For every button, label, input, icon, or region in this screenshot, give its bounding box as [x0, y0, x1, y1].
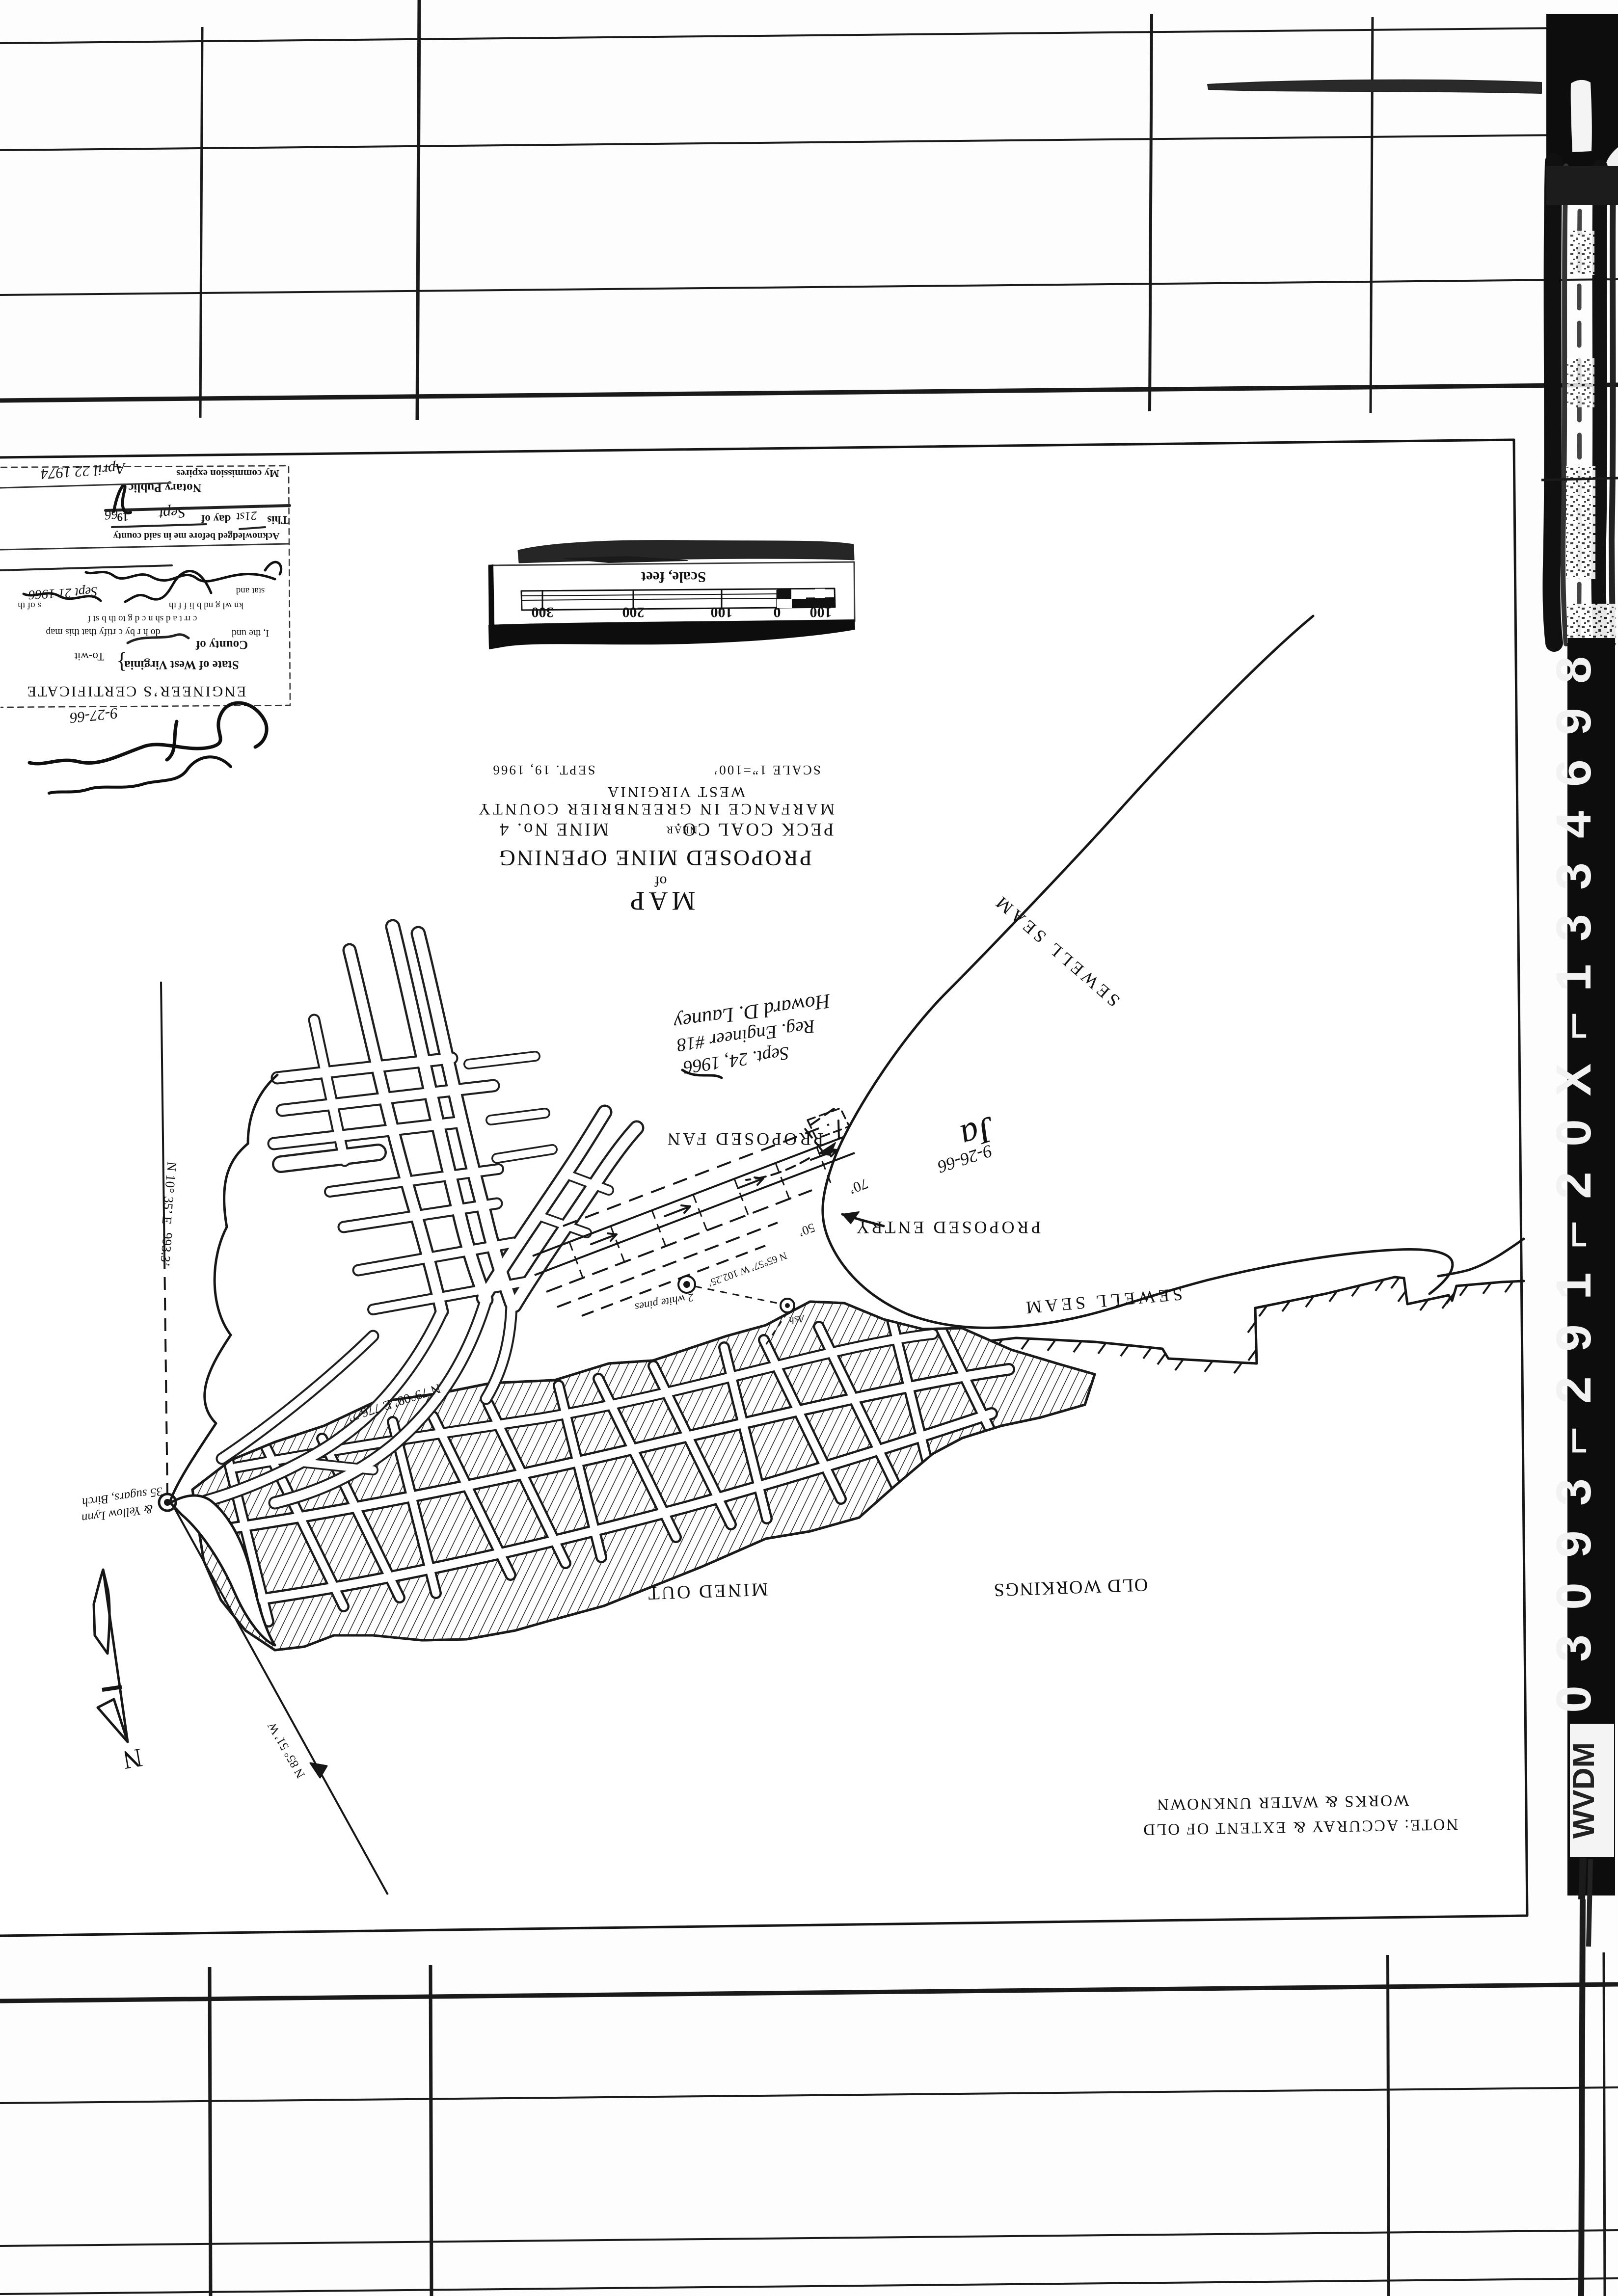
- svg-text:300: 300: [532, 604, 554, 620]
- svg-text:X: X: [1546, 1064, 1601, 1096]
- svg-text:3: 3: [1546, 862, 1601, 890]
- svg-text:3: 3: [1546, 914, 1601, 941]
- svg-text:kn wl g nd b li f f th: kn wl g nd b li f f th: [169, 600, 243, 611]
- svg-text:2: 2: [1546, 1172, 1601, 1199]
- svg-text:MAP: MAP: [626, 886, 695, 916]
- svg-text:9: 9: [1546, 708, 1601, 735]
- svg-text:c rr t a d sh n c d g to th: c rr t a d sh n c d g to th b st f: [87, 614, 197, 624]
- svg-text:4: 4: [1546, 811, 1601, 838]
- svg-text:993.3’: 993.3’: [158, 1232, 175, 1267]
- svg-text:To-wit: To-wit: [74, 650, 105, 663]
- svg-text:PROPOSED MINE OPENING: PROPOSED MINE OPENING: [498, 846, 812, 871]
- svg-text:NEAR: NEAR: [665, 824, 697, 836]
- svg-text:1: 1: [1546, 964, 1601, 991]
- svg-text:3: 3: [1546, 1634, 1601, 1662]
- svg-text:This: This: [267, 514, 289, 526]
- svg-text:⌐: ⌐: [1546, 1012, 1601, 1040]
- svg-text:200: 200: [622, 604, 645, 620]
- svg-text:I, the und: I, the und: [232, 628, 269, 639]
- svg-text:}: }: [116, 650, 127, 675]
- svg-text:of: of: [655, 873, 667, 889]
- svg-text:PROPOSED FAN: PROPOSED FAN: [665, 1129, 823, 1149]
- svg-text:Acknowledged before me in said: Acknowledged before me in said county: [113, 531, 279, 541]
- svg-text:21st: 21st: [236, 508, 258, 524]
- svg-text:ENGINEER’S CERTIFICATE: ENGINEER’S CERTIFICATE: [26, 683, 246, 700]
- svg-text:⌐: ⌐: [1546, 1220, 1601, 1249]
- svg-text:do h r by c rtify that this ma: do h r by c rtify that this map: [46, 627, 160, 638]
- svg-text:0: 0: [1546, 1119, 1601, 1147]
- svg-text:MINE No. 4: MINE No. 4: [498, 819, 609, 839]
- svg-text:My commission expires: My commission expires: [176, 468, 279, 480]
- svg-text:Sept: Sept: [158, 504, 187, 524]
- svg-text:0: 0: [1546, 1582, 1601, 1610]
- svg-text:6: 6: [1546, 759, 1601, 787]
- svg-text:8: 8: [1546, 656, 1601, 684]
- svg-text:2: 2: [1546, 1376, 1601, 1404]
- svg-text:MINED OUT: MINED OUT: [646, 1579, 768, 1604]
- svg-text:State of West Virginia: State of West Virginia: [124, 658, 239, 671]
- svg-text:SCALE 1”=100’: SCALE 1”=100’: [712, 763, 820, 777]
- svg-text:PROPOSED ENTRY: PROPOSED ENTRY: [854, 1218, 1041, 1237]
- svg-text:MARFANCE IN GREENBRIER COUN: MARFANCE IN GREENBRIER COUNTY: [476, 800, 835, 818]
- svg-text:100: 100: [711, 604, 733, 620]
- svg-text:WEST VIRGINIA: WEST VIRGINIA: [606, 784, 745, 801]
- svg-text:⌐: ⌐: [1546, 1426, 1601, 1455]
- svg-text:stat and: stat and: [236, 586, 265, 596]
- svg-text:County of: County of: [195, 638, 248, 651]
- svg-text:PECK COAL CO.: PECK COAL CO.: [674, 819, 834, 839]
- svg-text:3: 3: [1546, 1478, 1601, 1506]
- svg-text:9: 9: [1546, 1530, 1601, 1558]
- svg-text:WVDM: WVDM: [1567, 1742, 1601, 1839]
- svg-text:9: 9: [1546, 1324, 1601, 1352]
- svg-text:0: 0: [1546, 1685, 1601, 1713]
- svg-text:Scale, feet: Scale, feet: [641, 569, 706, 586]
- svg-text:1: 1: [1546, 1272, 1601, 1300]
- svg-text:SEPT. 19, 1966: SEPT. 19, 1966: [491, 763, 595, 777]
